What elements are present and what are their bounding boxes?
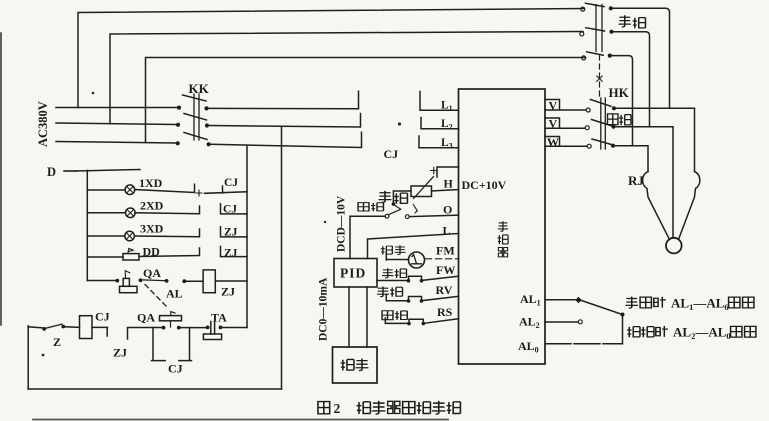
svg-text:H: H: [444, 177, 454, 191]
svg-text:AC380V: AC380V: [36, 101, 50, 147]
svg-text:Z: Z: [53, 335, 61, 349]
svg-text:TA: TA: [211, 311, 227, 325]
svg-text:1XD: 1XD: [139, 176, 163, 190]
svg-text:CJ: CJ: [384, 147, 399, 161]
svg-text:QA: QA: [143, 266, 161, 280]
svg-text:FM: FM: [436, 244, 455, 258]
svg-text:O: O: [443, 203, 452, 217]
svg-text:V: V: [549, 99, 558, 113]
svg-text:V: V: [549, 117, 558, 131]
svg-text:2: 2: [334, 401, 341, 416]
svg-text:CJ: CJ: [168, 362, 183, 376]
svg-text:3XD: 3XD: [140, 222, 164, 236]
svg-text:D: D: [47, 165, 56, 179]
svg-text:CJ: CJ: [223, 204, 237, 216]
svg-text:QA: QA: [137, 311, 155, 325]
svg-text:W: W: [547, 135, 559, 149]
svg-text:ZJ: ZJ: [221, 285, 235, 299]
svg-text:CJ: CJ: [224, 177, 238, 189]
svg-text:RV: RV: [436, 283, 453, 297]
svg-text:DC0—10mA: DC0—10mA: [318, 277, 330, 341]
svg-text:RJ: RJ: [628, 173, 644, 188]
svg-text:ZJ: ZJ: [224, 227, 238, 239]
svg-text:RS: RS: [437, 305, 453, 319]
svg-text:FW: FW: [436, 263, 455, 277]
svg-text:ZJ: ZJ: [224, 248, 238, 260]
svg-text:DCD—10V: DCD—10V: [336, 195, 348, 252]
svg-text:L: L: [443, 224, 451, 238]
svg-text:DD: DD: [143, 245, 161, 259]
svg-text:AL1—AL6: AL1—AL6: [671, 296, 729, 313]
svg-text:ZJ: ZJ: [113, 346, 127, 360]
svg-text:2XD: 2XD: [140, 199, 164, 213]
svg-text:PID: PID: [340, 266, 366, 281]
svg-text:AL: AL: [166, 287, 183, 301]
svg-text:KK: KK: [189, 81, 210, 96]
svg-text:HK: HK: [609, 85, 630, 100]
svg-text:DC+10V: DC+10V: [462, 178, 507, 192]
svg-text:CJ: CJ: [95, 310, 110, 324]
svg-text:AL2—AL0: AL2—AL0: [673, 325, 731, 342]
